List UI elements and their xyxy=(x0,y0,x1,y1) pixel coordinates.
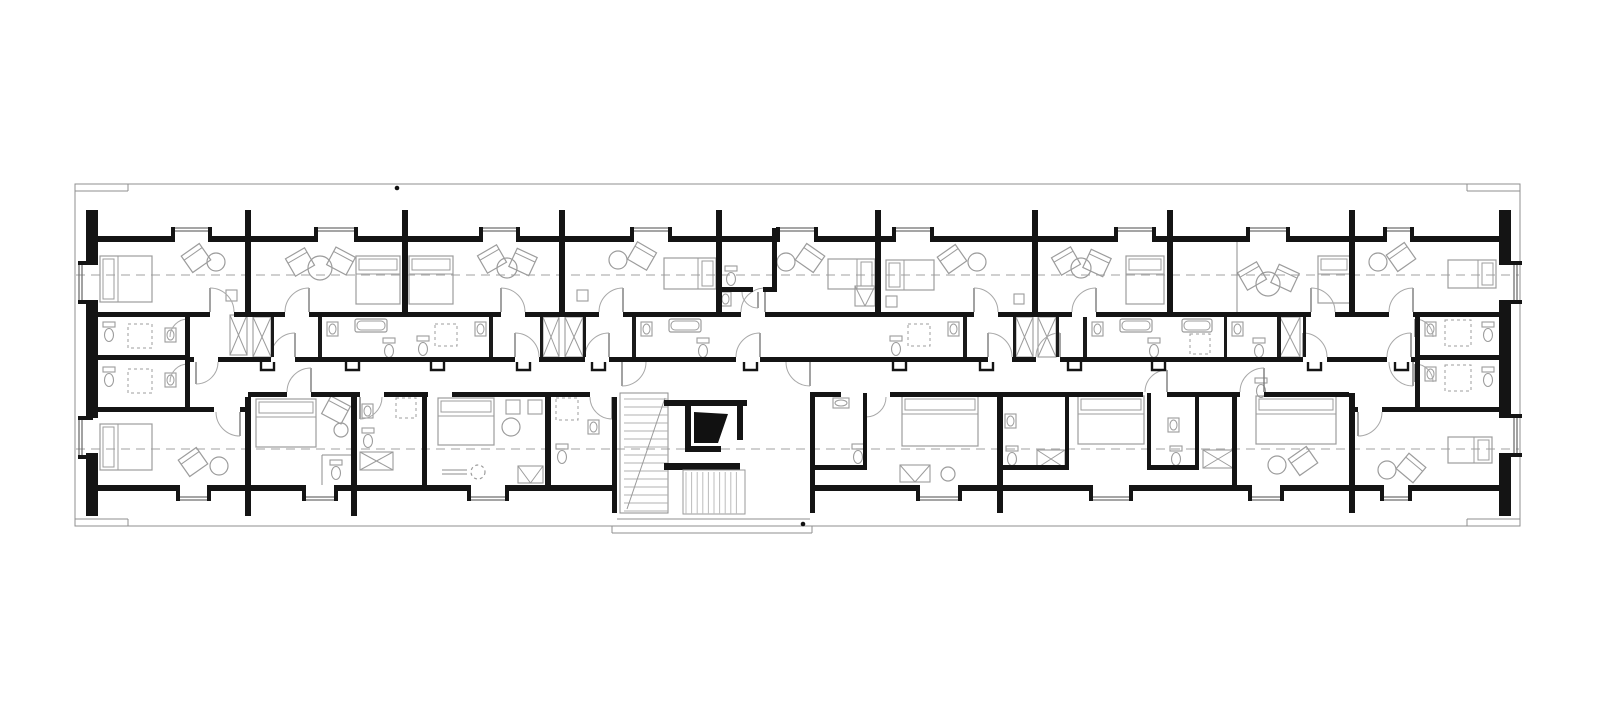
sink-basin xyxy=(590,422,597,432)
wall xyxy=(245,397,251,516)
shower xyxy=(128,369,152,393)
wall xyxy=(351,393,357,516)
bed xyxy=(1078,396,1144,444)
side-table xyxy=(210,457,228,475)
toilet-bowl xyxy=(332,467,341,480)
wall xyxy=(505,485,612,491)
wall xyxy=(612,397,617,513)
wall xyxy=(1147,393,1151,470)
toilet-tank xyxy=(1148,338,1160,343)
armchair-back xyxy=(635,246,654,257)
luggage-rack-v xyxy=(900,465,915,482)
side-table xyxy=(334,423,348,437)
bed-pillow xyxy=(1259,399,1333,410)
armchair-back xyxy=(334,251,353,261)
toilet-bowl xyxy=(1172,453,1181,466)
sink-basin xyxy=(329,324,336,334)
wall xyxy=(1349,210,1355,317)
toilet-bowl xyxy=(854,451,863,464)
armchair xyxy=(1083,249,1111,276)
wall xyxy=(86,453,98,516)
wall xyxy=(86,300,98,418)
wall xyxy=(1065,393,1069,470)
wall xyxy=(516,236,634,242)
bed-pillow xyxy=(1478,440,1489,460)
bathtub-inner xyxy=(1184,321,1210,330)
bed xyxy=(1256,396,1336,444)
wall xyxy=(559,210,565,317)
wall xyxy=(958,485,1093,491)
bed xyxy=(1448,260,1496,288)
partition-wall xyxy=(632,317,636,357)
shower xyxy=(556,398,578,420)
side-table xyxy=(502,418,520,436)
partition-wall xyxy=(1224,317,1227,357)
shower xyxy=(1445,320,1471,346)
wall xyxy=(218,357,271,362)
door-frame-stub xyxy=(261,362,274,370)
sink-basin xyxy=(364,406,371,416)
door-arc xyxy=(599,288,623,312)
wall xyxy=(1280,485,1384,491)
toilet-bowl xyxy=(1255,345,1264,358)
wall xyxy=(295,357,515,362)
toilet-tank xyxy=(383,338,395,343)
luggage-rack xyxy=(900,465,930,482)
wall xyxy=(1335,312,1389,317)
wall xyxy=(1420,355,1499,360)
bed-pillow xyxy=(359,259,397,270)
door-arc xyxy=(216,412,240,436)
armchair xyxy=(1271,264,1299,291)
toilet-tank xyxy=(103,367,115,372)
bed xyxy=(100,256,152,302)
stair-core-layer xyxy=(620,393,747,514)
wall xyxy=(763,287,772,292)
armchair-back xyxy=(940,249,958,262)
side-table xyxy=(1268,456,1286,474)
bed xyxy=(664,258,716,289)
bed-pillow xyxy=(103,427,114,467)
wall xyxy=(1012,357,1036,362)
bed xyxy=(1448,437,1492,463)
side-table xyxy=(207,253,225,271)
armchair xyxy=(627,242,656,270)
wall xyxy=(1195,393,1199,470)
wall xyxy=(1264,392,1349,397)
bed-pillow xyxy=(103,259,114,299)
bed-pillow xyxy=(1482,263,1493,285)
toilet-tank xyxy=(1255,378,1267,383)
door-arc xyxy=(866,397,886,417)
armchair xyxy=(181,243,210,272)
door-arc xyxy=(271,333,295,357)
wall xyxy=(1410,236,1499,242)
toilet-bowl xyxy=(105,374,114,387)
toilet-bowl xyxy=(1484,329,1493,342)
wall xyxy=(815,392,841,397)
door-frame-stub xyxy=(1308,362,1321,370)
bathtub-inner xyxy=(357,321,385,330)
wall xyxy=(190,357,194,362)
wall xyxy=(760,357,988,362)
sink-basin xyxy=(722,294,729,304)
armchair-back xyxy=(1389,247,1407,260)
armchair xyxy=(327,247,356,275)
elevator-wall xyxy=(664,400,747,406)
wall xyxy=(248,392,287,397)
toilet-tank xyxy=(103,322,115,327)
wall xyxy=(86,312,210,317)
toilet-bowl xyxy=(892,343,901,356)
wall xyxy=(815,485,920,491)
armchair-back xyxy=(1089,254,1109,263)
side-table xyxy=(497,258,517,278)
wall xyxy=(384,392,428,397)
wall xyxy=(545,393,551,485)
bed-pillow xyxy=(1081,399,1141,410)
bed-pillow xyxy=(1129,259,1161,270)
nightstand xyxy=(886,296,897,307)
sink-basin xyxy=(1170,420,1177,430)
wall xyxy=(1382,407,1415,412)
wall xyxy=(208,236,318,242)
wall xyxy=(539,357,585,362)
wall xyxy=(1152,236,1250,242)
survey-dot xyxy=(801,522,806,527)
wall xyxy=(245,210,251,317)
door-arc xyxy=(1387,333,1411,357)
armchair-back xyxy=(804,248,822,261)
wall xyxy=(1096,312,1311,317)
toilet-tank xyxy=(725,266,737,271)
door-arc xyxy=(622,362,646,386)
wall xyxy=(354,236,483,242)
wall xyxy=(716,210,722,317)
door-frame-stub xyxy=(517,362,530,370)
side-table xyxy=(609,251,627,269)
armchair-seat xyxy=(1386,242,1415,271)
sink-basin xyxy=(477,324,484,334)
armchair xyxy=(1051,247,1080,275)
door-arc xyxy=(501,288,525,312)
wall xyxy=(309,312,501,317)
shower xyxy=(1445,365,1471,391)
luggage-rack-v xyxy=(518,466,531,483)
side-table xyxy=(941,467,955,481)
side-table xyxy=(471,465,485,479)
partition-wall xyxy=(1303,317,1306,357)
wall xyxy=(814,236,896,242)
wall xyxy=(863,393,867,470)
toilet-tank xyxy=(330,460,342,465)
toilet-tank xyxy=(362,428,374,433)
wall xyxy=(334,485,471,491)
armchair xyxy=(1396,453,1426,482)
bed-pillow xyxy=(1321,259,1347,270)
armchair-seat xyxy=(509,248,537,275)
bed-pillow xyxy=(905,399,975,410)
wall xyxy=(1499,210,1511,265)
wall xyxy=(765,312,974,317)
bed xyxy=(828,259,875,289)
wall xyxy=(998,312,1072,317)
door-arc xyxy=(585,333,609,357)
bed-pillow xyxy=(412,259,450,270)
bed xyxy=(1126,256,1164,304)
side-table xyxy=(1369,253,1387,271)
bed-pillow xyxy=(861,262,872,286)
wall xyxy=(1129,485,1252,491)
toilet-tank xyxy=(1482,367,1494,372)
wall xyxy=(1286,236,1387,242)
wall xyxy=(623,312,741,317)
wall xyxy=(1349,393,1355,513)
toilet-bowl xyxy=(727,273,736,286)
door-arc xyxy=(988,333,1012,357)
side-table xyxy=(968,253,986,271)
side-table xyxy=(308,256,332,280)
toilet-bowl xyxy=(1150,345,1159,358)
bed-pillow xyxy=(702,261,713,286)
door-frame-stub xyxy=(1395,362,1408,370)
door-arc xyxy=(1145,370,1167,392)
elevator-wall xyxy=(664,463,740,470)
wall xyxy=(810,392,815,513)
toilet-bowl xyxy=(105,329,114,342)
door-arc xyxy=(1072,288,1096,312)
partition-wall xyxy=(1056,317,1059,357)
armchair xyxy=(1288,446,1317,475)
armchair xyxy=(795,243,824,272)
bed-pillow xyxy=(441,401,491,412)
armchair-seat xyxy=(795,243,824,272)
wall xyxy=(930,236,1118,242)
wall xyxy=(1167,392,1240,397)
bed xyxy=(902,396,978,446)
toilet-bowl xyxy=(699,345,708,358)
wall xyxy=(98,236,175,242)
wall xyxy=(719,287,753,292)
partition-wall xyxy=(1277,317,1281,357)
door-arc xyxy=(287,368,311,392)
toilet-tank xyxy=(556,444,568,449)
bed xyxy=(100,424,152,470)
door-arc xyxy=(285,288,309,312)
wall xyxy=(875,210,881,317)
toilet-tank xyxy=(417,336,429,341)
wall xyxy=(1411,357,1415,362)
door-arc xyxy=(1240,368,1264,392)
door-arc xyxy=(742,292,758,308)
wall xyxy=(98,355,185,360)
elevator-wall xyxy=(737,406,743,440)
wall xyxy=(668,236,780,242)
partition-wall xyxy=(489,317,493,357)
armchair-back xyxy=(181,452,199,465)
armchair-back xyxy=(1277,269,1297,278)
windows-layer xyxy=(78,227,1522,501)
door-frame-stub xyxy=(592,362,605,370)
bed xyxy=(409,256,453,304)
shower xyxy=(435,324,457,346)
sink-basin xyxy=(950,324,957,334)
wall xyxy=(1499,453,1511,516)
wall xyxy=(1408,485,1499,491)
door-arc xyxy=(590,397,612,419)
wall xyxy=(98,407,190,412)
door-arc xyxy=(736,333,760,357)
sink-basin xyxy=(835,400,847,406)
wall xyxy=(1413,312,1511,317)
toilet-bowl xyxy=(419,343,428,356)
armchair-back xyxy=(480,249,499,260)
partition-wall xyxy=(963,317,967,357)
wall xyxy=(234,312,285,317)
bed xyxy=(1318,256,1350,303)
wall xyxy=(1232,393,1237,485)
toilet-tank xyxy=(890,336,902,341)
side-table xyxy=(777,253,795,271)
door-frame-stub xyxy=(346,362,359,370)
armchair-back xyxy=(288,252,307,263)
door-arc xyxy=(1389,362,1413,386)
wall xyxy=(1060,357,1303,362)
armchair xyxy=(178,447,207,476)
door-arc xyxy=(974,288,998,312)
partition-wall xyxy=(540,317,543,357)
bed xyxy=(438,398,494,445)
toilet-tank xyxy=(697,338,709,343)
armchair-seat xyxy=(1083,249,1111,276)
wall xyxy=(1147,465,1199,470)
armchair xyxy=(1386,242,1415,271)
luggage-rack-v xyxy=(915,465,930,482)
armchair-seat xyxy=(1288,446,1317,475)
wall xyxy=(609,357,736,362)
survey-dot xyxy=(395,186,400,191)
bed xyxy=(356,256,400,304)
sink-basin xyxy=(643,324,650,334)
armchair-seat xyxy=(1396,453,1426,482)
nightstand xyxy=(1014,294,1024,304)
armchair-back xyxy=(1054,251,1073,262)
wall xyxy=(402,210,408,317)
wall xyxy=(1167,210,1173,317)
wall xyxy=(452,392,590,397)
armchair-seat xyxy=(1271,264,1299,291)
bathtub-inner xyxy=(671,321,699,330)
wall xyxy=(422,393,427,485)
partition-wall xyxy=(318,317,322,357)
wall xyxy=(185,317,190,407)
wall xyxy=(1415,317,1420,407)
wall xyxy=(997,465,1069,470)
side-table xyxy=(1378,461,1396,479)
furniture-layer xyxy=(100,242,1496,483)
nightstand xyxy=(528,400,542,414)
wall xyxy=(1415,407,1499,412)
toilet-bowl xyxy=(364,435,373,448)
luggage-rack xyxy=(518,466,543,483)
door-arc xyxy=(196,362,218,384)
toilet-bowl xyxy=(558,451,567,464)
toilet-bowl xyxy=(385,345,394,358)
partition-wall xyxy=(271,317,274,357)
wall xyxy=(207,485,306,491)
toilet-tank xyxy=(1482,322,1494,327)
wall xyxy=(1499,300,1511,418)
door-frame-stub xyxy=(744,362,757,370)
wall xyxy=(997,393,1003,513)
shower xyxy=(128,324,152,348)
armchair-back xyxy=(515,253,535,262)
door-arc xyxy=(1311,288,1335,312)
sink-basin xyxy=(1234,324,1241,334)
shower xyxy=(1190,334,1210,354)
wall xyxy=(98,485,180,491)
armchair xyxy=(1237,262,1266,290)
armchair-back xyxy=(184,248,202,261)
wall xyxy=(86,210,98,265)
wall xyxy=(1327,357,1387,362)
armchair-back xyxy=(1406,457,1423,471)
armchair-back xyxy=(329,400,348,410)
door-arc xyxy=(515,333,539,357)
armchair xyxy=(322,396,351,424)
bed xyxy=(256,399,316,447)
partition-wall xyxy=(1013,317,1016,357)
nightstand xyxy=(506,400,520,414)
toilet-tank xyxy=(852,444,864,449)
bathtub-inner xyxy=(1122,321,1150,330)
elevator-wall xyxy=(685,446,721,452)
door-frame-stub xyxy=(980,362,993,370)
door-frame-stub xyxy=(1152,362,1165,370)
shower xyxy=(908,324,930,346)
wall xyxy=(815,465,867,470)
door-arc xyxy=(1358,412,1382,436)
armchair xyxy=(937,244,966,273)
armchair-seat xyxy=(178,447,207,476)
armchair-seat xyxy=(937,244,966,273)
partition-wall xyxy=(1083,317,1087,357)
bed-pillow xyxy=(259,402,313,413)
toilet-bowl xyxy=(1008,453,1017,466)
door-frame-stub xyxy=(431,362,444,370)
door-arc xyxy=(1303,333,1327,357)
toilet-tank xyxy=(1253,338,1265,343)
shower xyxy=(396,398,416,418)
door-frame-stub xyxy=(1068,362,1081,370)
sink-basin xyxy=(1007,416,1014,426)
luggage-rack-v xyxy=(531,466,544,483)
wall xyxy=(890,392,1143,397)
door-arc xyxy=(210,288,234,312)
nightstand xyxy=(577,290,588,301)
door-arc xyxy=(1389,288,1413,312)
armchair-back xyxy=(1291,451,1309,464)
armchair xyxy=(509,248,537,275)
partition-wall xyxy=(583,317,586,357)
elevator-wall xyxy=(685,406,691,452)
toilet-bowl xyxy=(1484,374,1493,387)
wall xyxy=(1032,210,1038,317)
sink-basin xyxy=(1094,324,1101,334)
wall xyxy=(525,312,599,317)
armchair-seat xyxy=(181,243,210,272)
elevator-cab-wedge xyxy=(694,412,728,443)
